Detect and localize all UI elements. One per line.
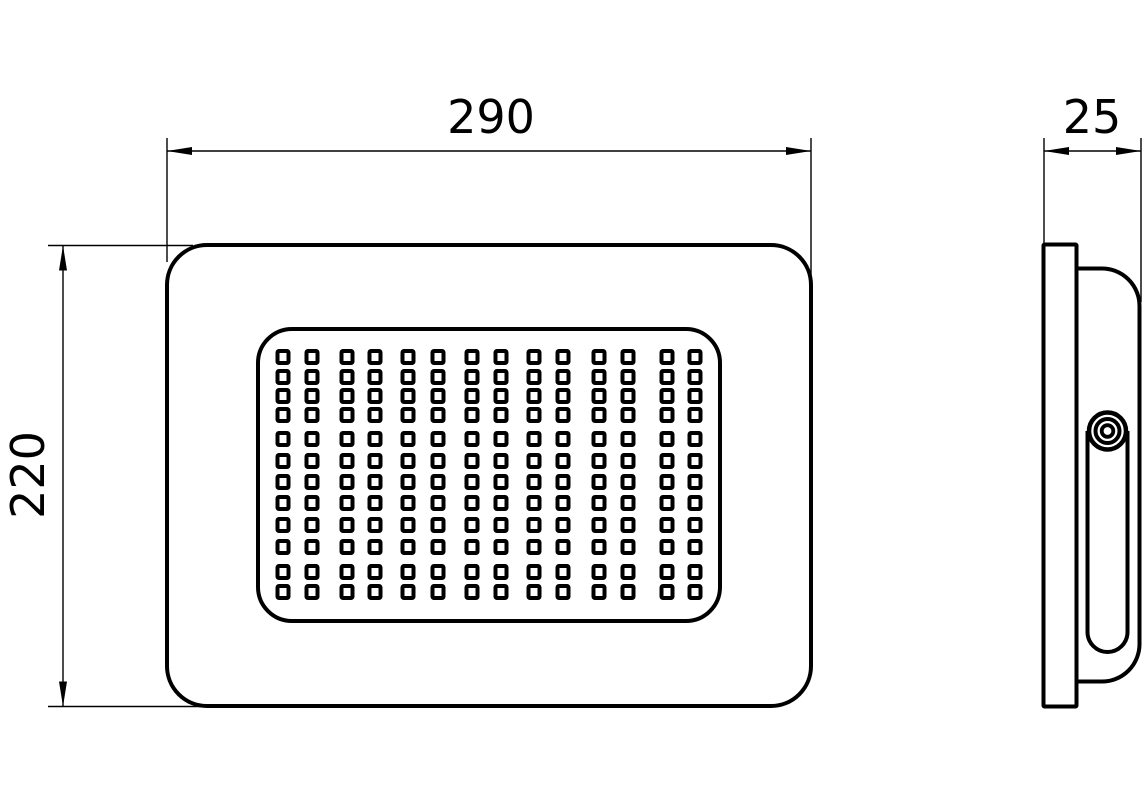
led [558,519,569,531]
led [558,497,569,509]
led [278,433,289,445]
led [342,497,353,509]
led [307,566,318,578]
led [370,541,381,553]
led [690,541,701,553]
led [370,390,381,402]
led [342,519,353,531]
led [662,566,673,578]
led [529,351,540,363]
led [623,371,634,383]
led [307,433,318,445]
led [558,433,569,445]
led [307,586,318,598]
led [342,541,353,553]
led [496,433,507,445]
led [496,566,507,578]
led [370,433,381,445]
dimension-drawing: 290 220 25 [0,0,1144,801]
led [594,476,605,488]
led [496,371,507,383]
led [496,476,507,488]
led [342,351,353,363]
led [529,519,540,531]
led [370,586,381,598]
led [690,476,701,488]
led [370,497,381,509]
led [342,390,353,402]
led [690,390,701,402]
led [370,476,381,488]
led [370,566,381,578]
led [370,409,381,421]
led [623,390,634,402]
led [662,371,673,383]
led [529,497,540,509]
led [496,497,507,509]
led [278,409,289,421]
led [467,541,478,553]
led [662,409,673,421]
led [623,455,634,467]
led [558,566,569,578]
led [558,390,569,402]
led [342,409,353,421]
led [529,390,540,402]
led [342,371,353,383]
led [623,351,634,363]
led [496,586,507,598]
housing-body [1075,268,1140,681]
led [433,390,444,402]
led [529,476,540,488]
led [662,519,673,531]
led [594,519,605,531]
led-panel-outline [258,329,720,621]
led [529,371,540,383]
led [467,390,478,402]
dim-width-arrow-left [167,147,192,155]
led [594,433,605,445]
led [594,371,605,383]
led [433,351,444,363]
led [467,433,478,445]
led [370,455,381,467]
led-grid [278,351,701,598]
led [558,409,569,421]
mounting-bracket [1088,431,1128,652]
led [496,351,507,363]
led [467,519,478,531]
led [690,351,701,363]
led [496,455,507,467]
led [433,586,444,598]
led [623,497,634,509]
dim-depth-label: 25 [1063,90,1122,144]
led [594,390,605,402]
led [623,519,634,531]
led [662,455,673,467]
led [623,586,634,598]
dim-width-arrow-right [786,147,811,155]
led [594,409,605,421]
led [690,409,701,421]
led [433,455,444,467]
led [307,351,318,363]
led [467,455,478,467]
led [342,566,353,578]
led [433,566,444,578]
led [690,455,701,467]
led [558,371,569,383]
led [496,390,507,402]
led [433,433,444,445]
led [342,455,353,467]
bracket-pivot-middle-ring [1096,419,1120,443]
led [307,409,318,421]
led [403,455,414,467]
led [496,519,507,531]
led [403,433,414,445]
led [278,566,289,578]
led [278,351,289,363]
dimension-height: 220 [1,246,230,707]
led [467,371,478,383]
dim-height-arrow-top [59,246,67,271]
led [278,476,289,488]
led [307,519,318,531]
led [529,409,540,421]
led [403,371,414,383]
led [307,371,318,383]
led [342,433,353,445]
led [403,390,414,402]
led [623,433,634,445]
led [307,476,318,488]
led [496,409,507,421]
led [278,586,289,598]
front-frame-plate [1044,245,1077,707]
led [529,541,540,553]
led [403,351,414,363]
side-view [1044,245,1140,707]
led [662,497,673,509]
led [403,586,414,598]
led [690,586,701,598]
led [662,541,673,553]
front-view [167,245,811,706]
led [558,351,569,363]
led [278,497,289,509]
led [278,455,289,467]
led [467,476,478,488]
led [403,409,414,421]
led [433,371,444,383]
led [690,519,701,531]
led [403,497,414,509]
led [690,566,701,578]
led [403,541,414,553]
led [370,519,381,531]
led [662,476,673,488]
led [467,586,478,598]
led [342,586,353,598]
led [662,390,673,402]
dim-width-label: 290 [447,90,535,144]
led [433,476,444,488]
led [307,497,318,509]
led [690,433,701,445]
led [662,351,673,363]
led [307,455,318,467]
led [370,371,381,383]
led [403,566,414,578]
led [433,409,444,421]
led [690,497,701,509]
led [403,519,414,531]
led [594,497,605,509]
led [558,586,569,598]
dim-height-label: 220 [1,431,55,519]
led [370,351,381,363]
led [433,519,444,531]
led [623,476,634,488]
led [594,455,605,467]
led [594,566,605,578]
led [594,541,605,553]
dim-height-arrow-bottom [59,682,67,707]
led [594,351,605,363]
led [558,455,569,467]
led [529,433,540,445]
led [623,541,634,553]
housing-outline [167,245,811,706]
led [467,566,478,578]
led [433,497,444,509]
led [662,586,673,598]
led [623,566,634,578]
led [467,351,478,363]
led [278,541,289,553]
dim-depth-arrow-right [1116,147,1141,155]
led [307,541,318,553]
led [342,476,353,488]
dim-depth-arrow-left [1044,147,1069,155]
led [529,566,540,578]
led [278,519,289,531]
led [278,390,289,402]
led [623,409,634,421]
led [558,476,569,488]
led [403,476,414,488]
led [690,371,701,383]
led [594,586,605,598]
led [433,541,444,553]
led [662,433,673,445]
led [558,541,569,553]
led [307,390,318,402]
dimension-width: 290 [167,90,811,278]
led [496,541,507,553]
led [467,497,478,509]
bracket-pivot-screw [1102,425,1114,437]
led [529,586,540,598]
led [278,371,289,383]
led [529,455,540,467]
led [467,409,478,421]
